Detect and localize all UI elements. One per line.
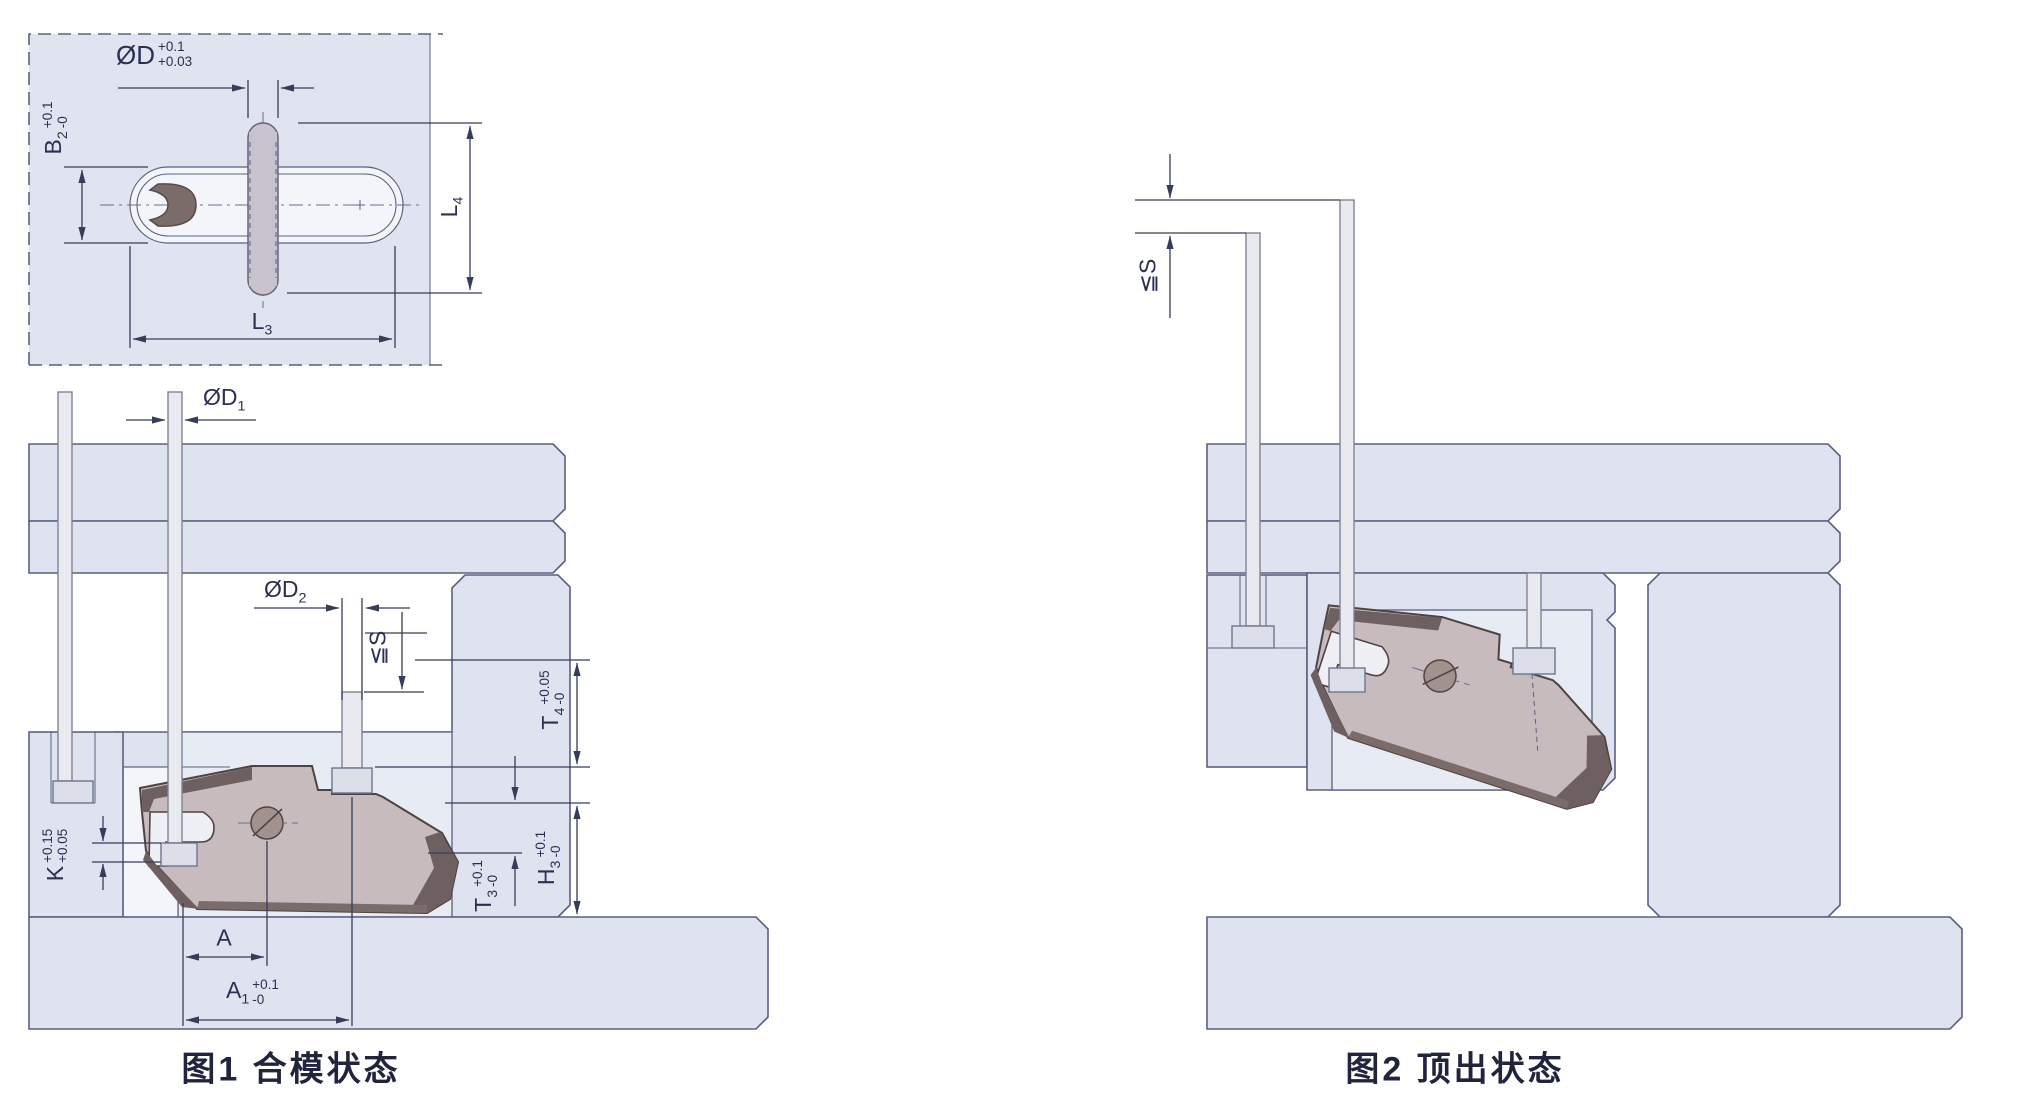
figure2-caption: 图2 顶出状态 (1345, 1042, 1564, 1091)
dim-label-l3: L3 (252, 310, 273, 338)
tol-bottom: -0 (549, 831, 564, 858)
dim-base: L4 (438, 197, 466, 218)
ejector-pin-2-head (161, 843, 197, 866)
dim-base: K (45, 866, 68, 881)
dim-base: L3 (252, 310, 273, 338)
dim-base: H3 (535, 861, 563, 886)
dim-base: ØD1 (203, 386, 245, 414)
dim-tolerance: +0.1 -0 (471, 860, 501, 887)
dim-tolerance: +0.1 -0 (534, 831, 564, 858)
tol-bottom: -0 (553, 670, 568, 704)
dim-tolerance: +0.05 -0 (538, 670, 568, 704)
ejector-pin-2-shaft-2 (1340, 200, 1354, 670)
center-pin-head-2 (1513, 648, 1555, 674)
dim-label-a1: A1 +0.1 -0 (226, 978, 279, 1008)
dim-sub: 2 (55, 131, 71, 139)
dim-sub: 1 (241, 992, 249, 1008)
tol-top: +0.1 (41, 102, 56, 129)
tol-bottom: +0.03 (158, 55, 192, 70)
center-pin-shaft (342, 692, 362, 768)
dim-base: A1 (226, 979, 249, 1007)
bottom-clamp-plate-2 (1207, 917, 1962, 1029)
top-clamp-plate (29, 444, 565, 521)
tol-bottom: -0 (56, 102, 71, 129)
drawing-canvas (0, 0, 2033, 1109)
ejector-pin-1-shaft (58, 392, 72, 781)
tol-bottom: -0 (486, 860, 501, 887)
dim-base: ≦S (367, 631, 390, 666)
dim-label-s1: ≦S (367, 631, 390, 666)
dim-label-d: ØD +0.1 +0.03 (116, 40, 192, 70)
tol-top: +0.15 (41, 829, 56, 863)
dim-sub: 1 (238, 399, 246, 415)
dim-sub: 3 (548, 861, 564, 869)
tol-top: +0.05 (538, 670, 553, 704)
dim-label-a: A (216, 927, 231, 950)
cavity-plate (29, 521, 565, 573)
center-pin-head (332, 768, 372, 793)
ejector-pin-2-shaft (168, 392, 182, 843)
dim-label-k: K +0.15 +0.05 (41, 829, 71, 882)
dim-label-t4: T4 +0.05 -0 (538, 670, 568, 729)
dim-base: ØD2 (264, 578, 306, 606)
tol-top: +0.1 (158, 40, 192, 55)
center-pin-shaft-2 (1527, 573, 1541, 648)
tol-bottom: +0.05 (56, 829, 71, 863)
ejector-retainer-plate (29, 732, 123, 917)
dim-base: ≦S (1137, 259, 1160, 294)
dim-sub: 4 (552, 708, 568, 716)
dim-sub: 3 (485, 890, 501, 898)
dim-tolerance: +0.1 +0.03 (158, 40, 192, 70)
tol-bottom: -0 (252, 993, 279, 1008)
dim-sub: 2 (299, 591, 307, 607)
dim-label-l4: L4 (438, 197, 466, 218)
ejector-pin-1-shaft-2 (1246, 233, 1260, 626)
support-column-2 (1648, 573, 1840, 917)
dim-label-d2: ØD2 (264, 578, 306, 606)
dim-base: T4 (539, 708, 567, 730)
top-clamp-plate-2 (1207, 444, 1840, 521)
dim-tolerance: +0.15 +0.05 (41, 829, 71, 863)
dim-sub: 3 (264, 323, 272, 339)
dim-tolerance: +0.1 -0 (252, 978, 279, 1008)
dim-sub: 4 (451, 197, 467, 205)
figure1-closed-state (29, 34, 768, 1029)
dim-base: ØD (116, 42, 155, 68)
tol-top: +0.1 (252, 978, 279, 993)
ejector-pin-1-head (53, 781, 93, 803)
dim-label-t3: T3 +0.1 -0 (471, 860, 501, 912)
cavity-plate-2 (1207, 521, 1840, 573)
tol-top: +0.1 (471, 860, 486, 887)
ejector-pin-1-head-2 (1232, 626, 1274, 648)
dim-base: B2 (42, 131, 70, 154)
tol-top: +0.1 (534, 831, 549, 858)
figure2-ejected-state (1135, 154, 1962, 1029)
dim-base: T3 (472, 890, 500, 912)
dim-label-b2: B2 +0.1 -0 (41, 102, 71, 155)
figure1-caption: 图1 合模状态 (181, 1042, 400, 1091)
dim-label-s2: ≦S (1137, 259, 1160, 294)
dim-label-h3: H3 +0.1 -0 (534, 831, 564, 885)
dim-label-d1: ØD1 (203, 386, 245, 414)
dim-tolerance: +0.1 -0 (41, 102, 71, 129)
dim-base: A (216, 927, 231, 950)
technical-drawing-page: ØD +0.1 +0.03 B2 +0.1 -0 L3 L4 ØD1 ØD2 ≦… (0, 0, 2033, 1109)
ejector-pin-2-head-2 (1329, 668, 1365, 692)
bottom-clamp-plate (29, 917, 768, 1029)
